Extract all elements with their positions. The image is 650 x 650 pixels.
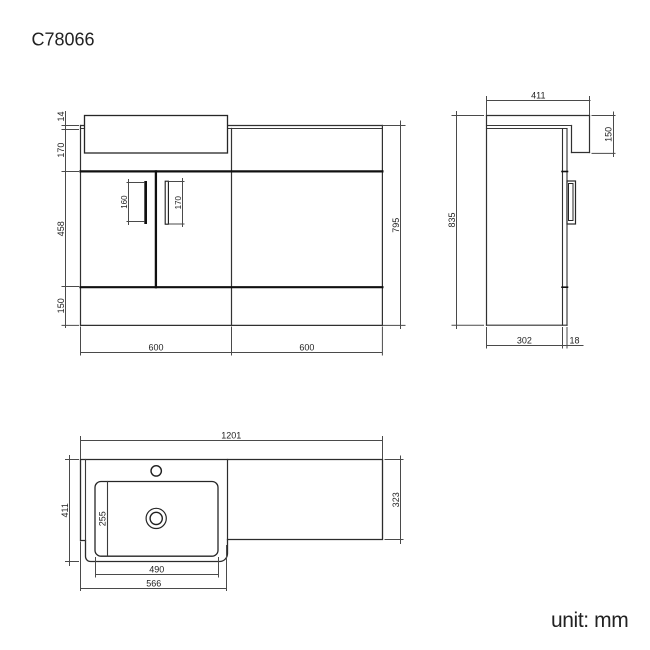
svg-text:411: 411: [531, 91, 545, 101]
svg-text:458: 458: [56, 221, 66, 236]
svg-text:302: 302: [517, 336, 532, 346]
svg-text:600: 600: [299, 343, 314, 353]
svg-text:600: 600: [148, 343, 163, 353]
svg-text:411: 411: [60, 503, 70, 517]
svg-text:unit: mm: unit: mm: [551, 609, 628, 632]
svg-text:323: 323: [391, 492, 401, 507]
svg-text:255: 255: [98, 511, 108, 526]
svg-text:14: 14: [56, 111, 66, 121]
svg-text:1201: 1201: [221, 431, 241, 441]
svg-text:150: 150: [604, 127, 614, 142]
svg-text:490: 490: [149, 565, 164, 575]
svg-text:18: 18: [569, 336, 579, 346]
svg-text:170: 170: [56, 143, 66, 158]
svg-text:170: 170: [174, 195, 183, 209]
svg-text:835: 835: [447, 212, 457, 227]
svg-text:160: 160: [120, 195, 129, 209]
svg-text:795: 795: [391, 218, 401, 233]
svg-text:C78066: C78066: [32, 30, 95, 50]
svg-text:566: 566: [146, 579, 161, 589]
svg-text:150: 150: [56, 298, 66, 313]
